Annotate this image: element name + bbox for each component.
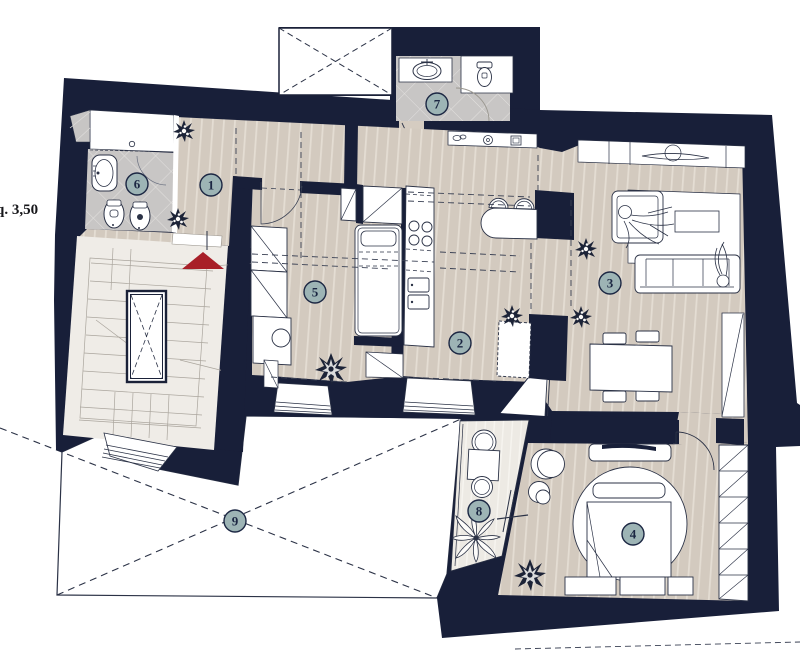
svg-text:4: 4	[630, 527, 637, 542]
svg-text:1: 1	[208, 178, 215, 193]
svg-text:3: 3	[607, 276, 614, 291]
svg-text:q. 3,50: q. 3,50	[0, 202, 38, 218]
svg-text:8: 8	[476, 504, 483, 519]
svg-text:6: 6	[134, 177, 141, 192]
svg-text:5: 5	[312, 285, 319, 300]
svg-text:7: 7	[434, 97, 441, 112]
svg-text:2: 2	[457, 336, 464, 351]
svg-text:9: 9	[232, 514, 239, 529]
